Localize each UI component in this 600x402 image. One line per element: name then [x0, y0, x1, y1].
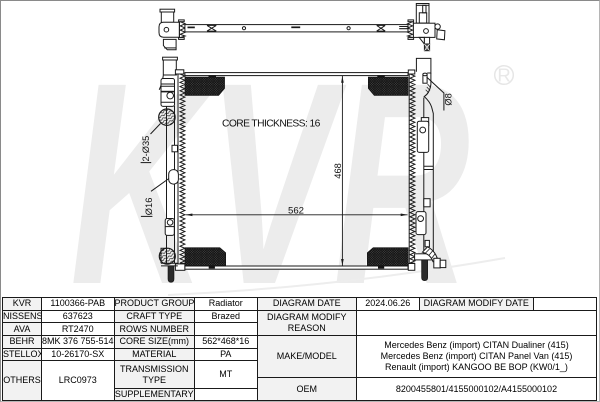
- svg-text:Ø16: Ø16: [144, 198, 154, 216]
- svg-text:562: 562: [288, 205, 304, 216]
- svg-text:468: 468: [333, 163, 343, 179]
- svg-text:Ø8: Ø8: [443, 93, 453, 105]
- svg-text:2-Ø35: 2-Ø35: [141, 136, 151, 162]
- svg-text:R: R: [497, 65, 510, 86]
- svg-text:CORE THICKNESS: 16: CORE THICKNESS: 16: [222, 119, 321, 130]
